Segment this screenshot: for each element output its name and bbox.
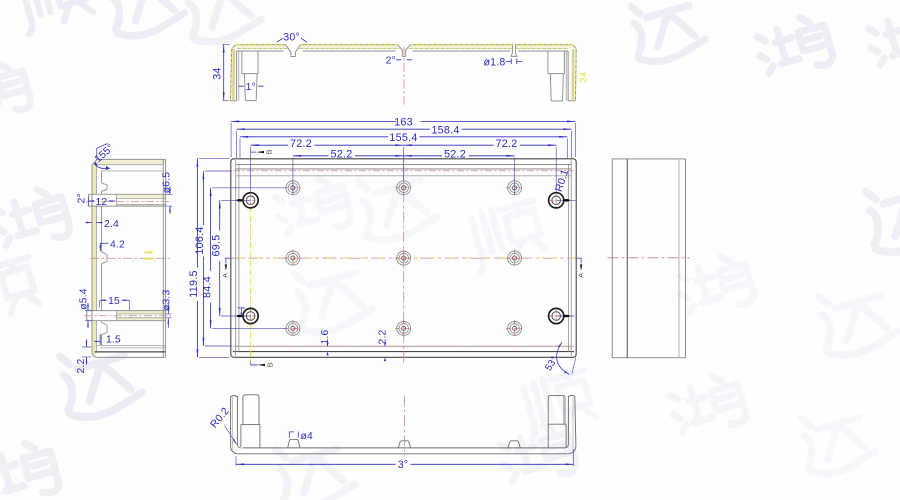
svg-text:30°: 30°	[283, 31, 300, 43]
svg-text:B: B	[265, 149, 274, 154]
svg-text:2.4: 2.4	[104, 219, 119, 230]
svg-text:ø3.3: ø3.3	[162, 290, 173, 311]
svg-text:52.2: 52.2	[444, 149, 466, 161]
svg-text:2°: 2°	[386, 56, 396, 67]
svg-text:2°: 2°	[77, 193, 88, 203]
svg-text:72.2: 72.2	[495, 138, 517, 150]
svg-text:B: B	[266, 362, 275, 367]
svg-text:R0.2: R0.2	[209, 406, 232, 431]
svg-text:24: 24	[579, 71, 589, 82]
svg-text:2.2: 2.2	[377, 329, 388, 344]
svg-text:4.2: 4.2	[110, 239, 125, 250]
svg-text:1°: 1°	[246, 82, 256, 93]
svg-text:12: 12	[95, 197, 107, 208]
svg-text:ø5.4: ø5.4	[79, 288, 90, 309]
svg-text:84.4: 84.4	[201, 276, 213, 298]
svg-text:A: A	[223, 273, 230, 278]
svg-text:119.5: 119.5	[188, 270, 200, 297]
svg-text:34: 34	[212, 67, 224, 79]
svg-text:106.4: 106.4	[194, 226, 206, 254]
svg-text:163: 163	[394, 117, 413, 129]
svg-text:ø4: ø4	[301, 431, 313, 442]
svg-text:158.4: 158.4	[431, 124, 459, 136]
svg-text:2.2: 2.2	[76, 358, 87, 373]
svg-text:72.2: 72.2	[290, 138, 312, 150]
svg-text:1.6: 1.6	[320, 329, 331, 344]
svg-text:52.2: 52.2	[330, 149, 352, 161]
svg-text:15: 15	[108, 296, 120, 307]
svg-text:A: A	[578, 273, 585, 278]
svg-text:1.5: 1.5	[106, 335, 121, 346]
svg-text:ø6.5: ø6.5	[162, 172, 173, 193]
svg-text:ø1.8: ø1.8	[484, 56, 506, 68]
svg-text:69.5: 69.5	[211, 234, 223, 256]
svg-text:155.4: 155.4	[389, 132, 417, 144]
svg-text:3°: 3°	[398, 459, 409, 471]
